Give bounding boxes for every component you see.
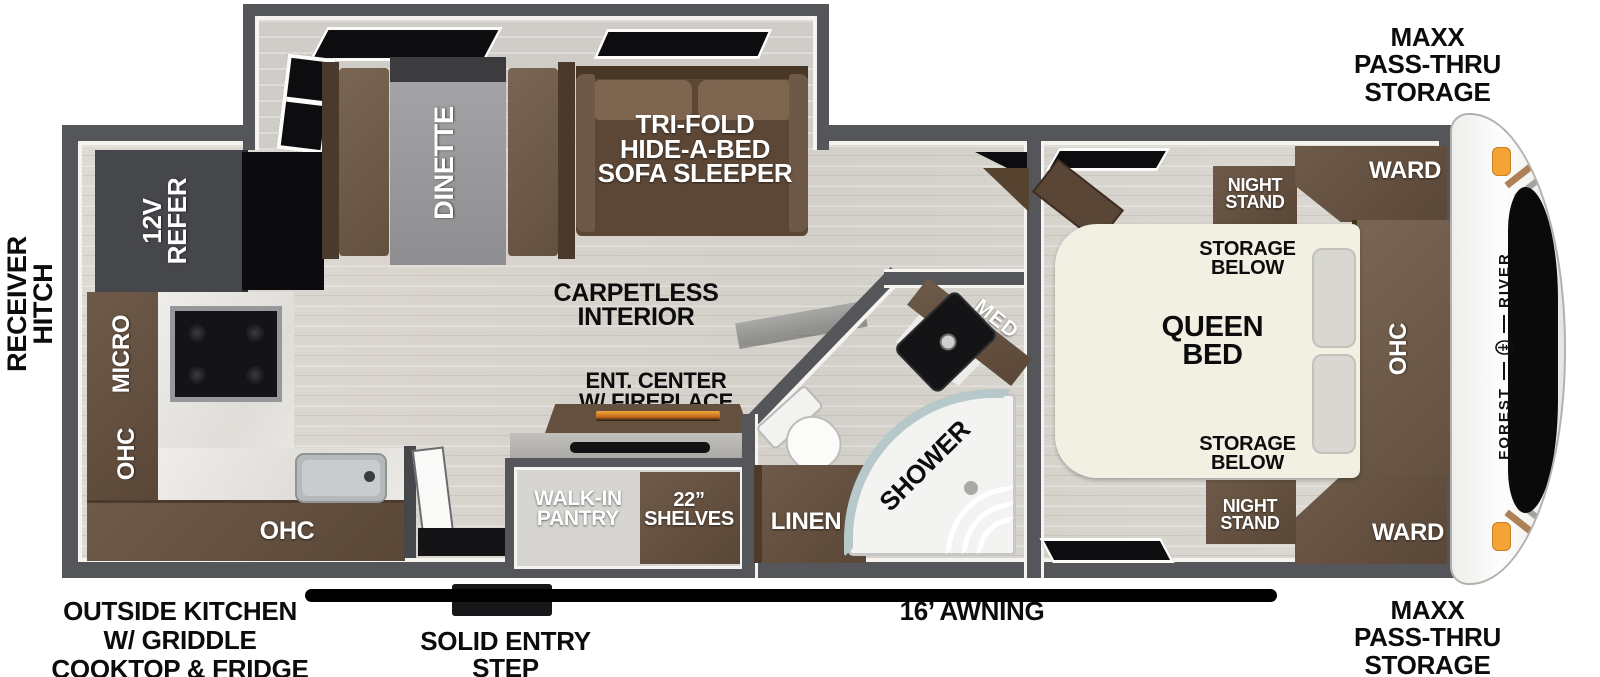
brand-word: FOREST <box>1496 387 1513 460</box>
carpetless-label: CARPETLESS INTERIOR <box>536 282 736 330</box>
window-icon <box>593 29 772 59</box>
entry-step-label: SOLID ENTRY STEP <box>403 628 608 677</box>
faucet-icon <box>364 471 375 482</box>
divider <box>1503 362 1505 380</box>
storage-below-top-label: STORAGE BELOW <box>1165 240 1330 278</box>
floorplan: RECEIVER HITCH 12V REFER MICRO OHC OHC <box>0 0 1600 677</box>
awning-label: 16’ AWNING <box>862 599 1082 624</box>
ohc-lower-label: OHC <box>227 520 347 544</box>
soundbar <box>570 442 710 453</box>
window-icon <box>1039 538 1174 563</box>
awning-bar <box>305 589 1277 602</box>
night-stand-label: NIGHT STAND <box>1208 498 1292 532</box>
storage-below-bottom-label: STORAGE BELOW <box>1165 435 1330 473</box>
divider <box>1503 315 1505 333</box>
shelves-label: 22” SHELVES <box>630 491 748 529</box>
brand-mark: FOREST RIVER <box>1495 201 1513 511</box>
ohc-upper-label: OHC <box>116 424 142 484</box>
storage-label-top: MAXX PASS-THRU STORAGE <box>1325 24 1530 106</box>
dinette-label: DINETTE <box>432 88 462 238</box>
dinette-bench <box>508 68 558 256</box>
night-stand-label: NIGHT STAND <box>1213 177 1297 211</box>
bedroom-ohc-label: OHC <box>1388 314 1414 384</box>
forest-river-crest-icon <box>1495 340 1514 355</box>
linen-label: LINEN <box>756 511 856 534</box>
sofa-label: TRI-FOLD HIDE-A-BED SOFA SLEEPER <box>595 112 795 186</box>
window-icon <box>309 27 503 61</box>
brand-word: RIVER <box>1496 252 1513 308</box>
outside-kitchen-label: OUTSIDE KITCHEN W/ GRIDDLE COOKTOP & FRI… <box>25 597 335 677</box>
entry-landing-mat <box>418 528 518 556</box>
windshield-decal <box>1508 187 1558 513</box>
refer-label: 12V REFER <box>140 151 196 291</box>
storage-label-bottom: MAXX PASS-THRU STORAGE <box>1325 597 1530 677</box>
drain-icon <box>964 481 978 495</box>
bath-top-wall <box>884 272 1032 285</box>
marker-light-icon <box>1492 147 1511 176</box>
drain-icon <box>936 330 960 354</box>
front-cap: FOREST RIVER <box>1450 113 1566 585</box>
queen-bed-label: QUEEN BED <box>1130 314 1295 369</box>
dinette-bench-back <box>322 62 339 259</box>
cooktop <box>170 306 282 402</box>
dinette-bench <box>339 68 389 256</box>
dinette-bench-back <box>558 62 575 259</box>
ward-bottom-label: WARD <box>1358 522 1458 545</box>
kitchen-sink <box>295 453 387 503</box>
pantry-label: WALK-IN PANTRY <box>512 489 644 529</box>
ward-top-label: WARD <box>1355 160 1455 183</box>
marker-light-icon <box>1492 522 1511 551</box>
cabinet-back-panel <box>242 152 324 290</box>
fireplace-icon <box>596 411 720 421</box>
micro-label: MICRO <box>111 309 137 399</box>
receiver-hitch-label: RECEIVER HITCH <box>5 189 61 419</box>
